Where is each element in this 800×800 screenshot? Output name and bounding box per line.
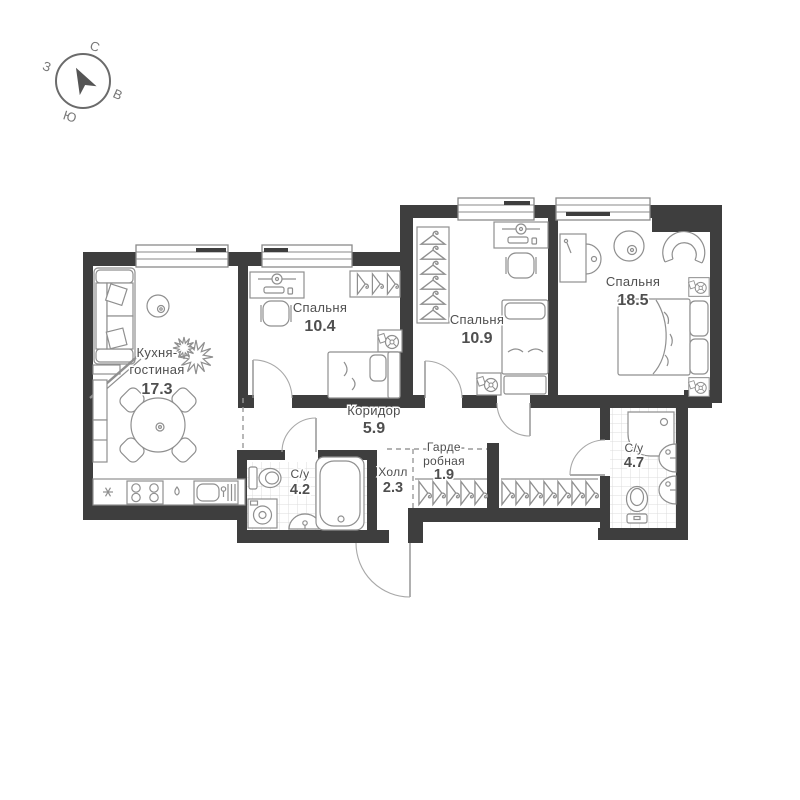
washing-machine-icon [248,499,277,528]
bedroom-small-area: 10.4 [304,318,335,335]
window-kitchen [136,245,228,267]
compass-east-label: В [111,86,125,103]
bedroom-large-area: 18.5 [617,292,648,309]
room-label-corridor: Коридор 5.9 [347,403,400,437]
room-label-bath-small: С/у 4.2 [290,467,310,498]
hall-area: 2.3 [383,480,403,496]
bath-large-name: С/у [625,441,644,455]
armchair [663,232,705,263]
compass-rose: С В Ю З [41,38,125,126]
bedroom-mid-area: 10.9 [461,330,492,347]
corridor-name: Коридор [347,403,400,418]
bath-small-area: 4.2 [290,482,310,498]
bathtub-icon [316,457,364,530]
room-label-wardrobe: Гарде- робная 1.9 [423,440,465,483]
nightstand-lamp-icon [689,378,710,397]
window-bedroom-large [556,198,650,220]
room-label-hall: Холл 2.3 [378,465,407,496]
bath-large-area: 4.7 [624,455,644,471]
kitchen-name-line1: Кухня- [137,345,178,360]
door-bedroom-large [497,403,530,436]
compass-south-label: Ю [61,107,78,125]
bedroom-large-name: Спальня [606,274,660,289]
wardrobe-name-line1: Гарде- [427,440,465,454]
nightstand-lamp-icon [378,330,402,352]
single-bed [328,352,400,398]
room-label-bedroom-mid: Спальня 10.9 [450,312,504,347]
dressing-table [560,234,601,282]
sink-icon [194,481,238,504]
stove-icon [127,481,163,504]
single-bed [502,300,548,394]
round-mirror-icon [614,231,644,261]
floor-plan: С В Ю З [0,0,800,800]
toilet-icon [627,487,648,524]
kitchen-counter [93,479,245,505]
door-bath-large [570,440,605,475]
desk [494,222,548,248]
office-chair [261,301,291,326]
bath-small-name: С/у [291,467,310,481]
hall-name: Холл [378,465,407,479]
kitchen-name-line2: гостиная [129,362,184,377]
compass-north-arrow-icon [68,63,97,95]
window-bedroom-small [262,245,352,267]
window-bedroom-mid [458,198,534,220]
office-chair [506,253,536,278]
wardrobe-name-line2: робная [423,454,465,468]
wardrobe-area: 1.9 [434,467,454,483]
bedroom-mid-furniture [417,222,548,395]
entrance-door [356,543,410,597]
bedroom-large-furniture [560,231,709,396]
nightstand-lamp-icon [477,373,501,395]
room-label-bedroom-small: Спальня 10.4 [293,300,347,335]
bedroom-mid-name: Спальня [450,312,504,327]
floor-plan-page: С В Ю З [0,0,800,800]
bedroom-small-name: Спальня [293,300,347,315]
desk [250,272,304,298]
double-bed [618,299,708,375]
door-bath-small [282,418,316,452]
compass-west-label: З [41,58,54,75]
corridor-hanger-row [501,479,598,504]
kitchen-area: 17.3 [141,381,172,398]
corridor-area: 5.9 [363,420,385,437]
door-bedroom-mid [425,361,462,398]
wardrobe-hangers-column [417,227,449,323]
wardrobe-hangers [350,271,400,297]
toilet-icon [249,467,281,489]
sofa [94,268,135,364]
nightstand-lamp-icon [689,278,710,297]
cabinet [93,380,107,462]
door-bedroom-small [253,360,292,398]
compass-north-label: С [88,38,102,55]
room-label-bath-large: С/у 4.7 [624,441,644,471]
ceiling-light-icon [147,295,169,317]
